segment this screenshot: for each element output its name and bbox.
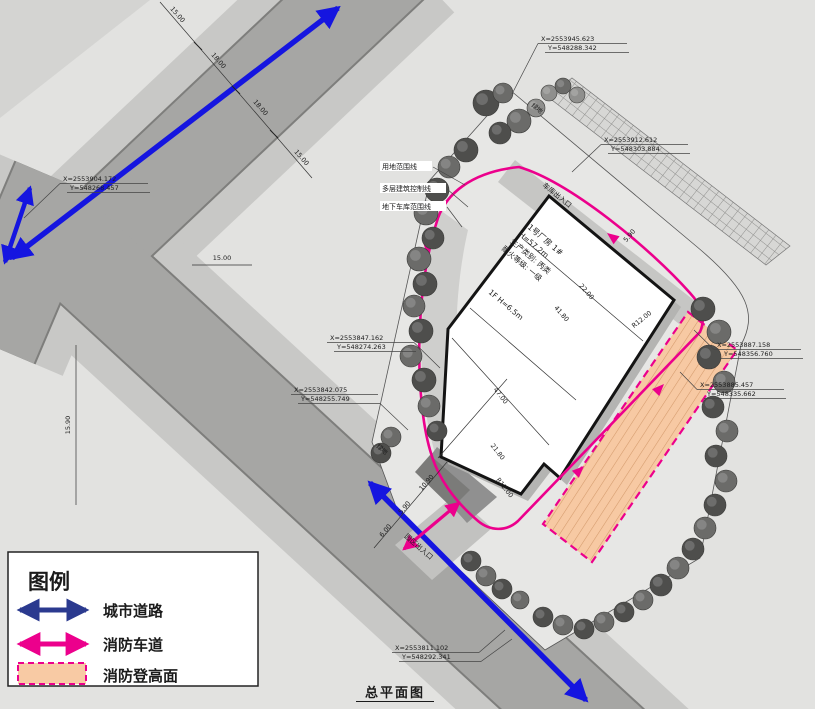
legend-city-road-label: 城市道路: [103, 602, 164, 620]
coordinate-x: X=2553887.158: [717, 341, 770, 349]
coordinate-x: X=2553885.457: [700, 381, 753, 389]
tree-highlight: [416, 275, 427, 286]
label-land-boundary: 用地范围线: [382, 162, 417, 171]
tree-highlight: [384, 430, 393, 439]
tree-highlight: [476, 93, 488, 105]
tree-highlight: [710, 323, 721, 334]
legend-ladder-area-label: 消防登高面: [103, 667, 178, 685]
legend-fire-lane-label: 消防车道: [103, 636, 163, 654]
dim-left: 15.90: [64, 416, 72, 435]
drawing-title-text: 总平面图: [365, 685, 425, 701]
tree-highlight: [556, 618, 565, 627]
tree-highlight: [653, 577, 663, 587]
site-plan-canvas: 1号厂房 1# H=57.2m 生产类别: 丙类 耐火等级: 一级 1F H=6…: [0, 0, 815, 709]
coordinate-x: X=2553847.162: [330, 334, 383, 342]
tree-highlight: [536, 610, 545, 619]
drawing-title: 总平面图: [356, 685, 434, 702]
coordinate-y: Y=548303.884: [610, 145, 660, 153]
coordinate-x: X=2553904.172: [63, 175, 116, 183]
coordinate-x: X=2553945.623: [541, 35, 594, 43]
tree-highlight: [457, 141, 468, 152]
tree-highlight: [719, 423, 729, 433]
tree-highlight: [597, 615, 606, 624]
tree-highlight: [410, 250, 421, 261]
tree-highlight: [406, 298, 416, 308]
coordinate-y: Y=548255.749: [300, 395, 350, 403]
legend: 图例 城市道路 消防车道 消防登高面: [8, 552, 258, 686]
coordinate-y: Y=548274.263: [336, 343, 386, 351]
tree-highlight: [403, 348, 413, 358]
tree-highlight: [415, 371, 426, 382]
coordinate-y: Y=548356.760: [723, 350, 773, 358]
tree-highlight: [492, 125, 502, 135]
tree-highlight: [441, 159, 451, 169]
site-plan-drawing: 1号厂房 1# H=57.2m 生产类别: 丙类 耐火等级: 一级 1F H=6…: [0, 0, 815, 709]
tree-highlight: [685, 541, 695, 551]
coordinate-x: X=2553842.075: [294, 386, 347, 394]
tree-highlight: [705, 399, 715, 409]
tree-highlight: [577, 622, 586, 631]
tree-highlight: [694, 300, 705, 311]
tree-highlight: [464, 554, 473, 563]
label-building-control-line: 多层建筑控制线: [382, 184, 431, 193]
dim-junction: 15.00: [213, 254, 232, 262]
tree-highlight: [425, 230, 435, 240]
tree-highlight: [707, 497, 717, 507]
coordinate-y: Y=548288.342: [547, 44, 597, 52]
tree-highlight: [708, 448, 718, 458]
tree-highlight: [617, 605, 626, 614]
tree-highlight: [636, 593, 645, 602]
tree-highlight: [421, 398, 431, 408]
tree-highlight: [543, 87, 550, 94]
tree-highlight: [510, 112, 521, 123]
tree-highlight: [412, 322, 423, 333]
tree-highlight: [697, 520, 707, 530]
tree-highlight: [513, 593, 521, 601]
tree-highlight: [718, 473, 728, 483]
tree-highlight: [496, 86, 505, 95]
legend-title: 图例: [28, 570, 70, 594]
tree-highlight: [700, 348, 711, 359]
coordinate-x: X=2553912.612: [604, 136, 657, 144]
tree-highlight: [557, 80, 564, 87]
tree-highlight: [571, 89, 578, 96]
coordinate-y: Y=548335.662: [706, 390, 756, 398]
tree-highlight: [479, 569, 488, 578]
coordinate-y: Y=548292.341: [401, 653, 451, 661]
tree-highlight: [495, 582, 504, 591]
legend-ladder-area-swatch: [18, 663, 86, 684]
label-garage-boundary: 地下车库范围线: [382, 202, 431, 211]
tree-highlight: [430, 424, 439, 433]
coordinate-y: Y=548268.457: [69, 184, 119, 192]
tree-highlight: [670, 560, 680, 570]
coordinate-x: X=2553811.102: [395, 644, 448, 652]
